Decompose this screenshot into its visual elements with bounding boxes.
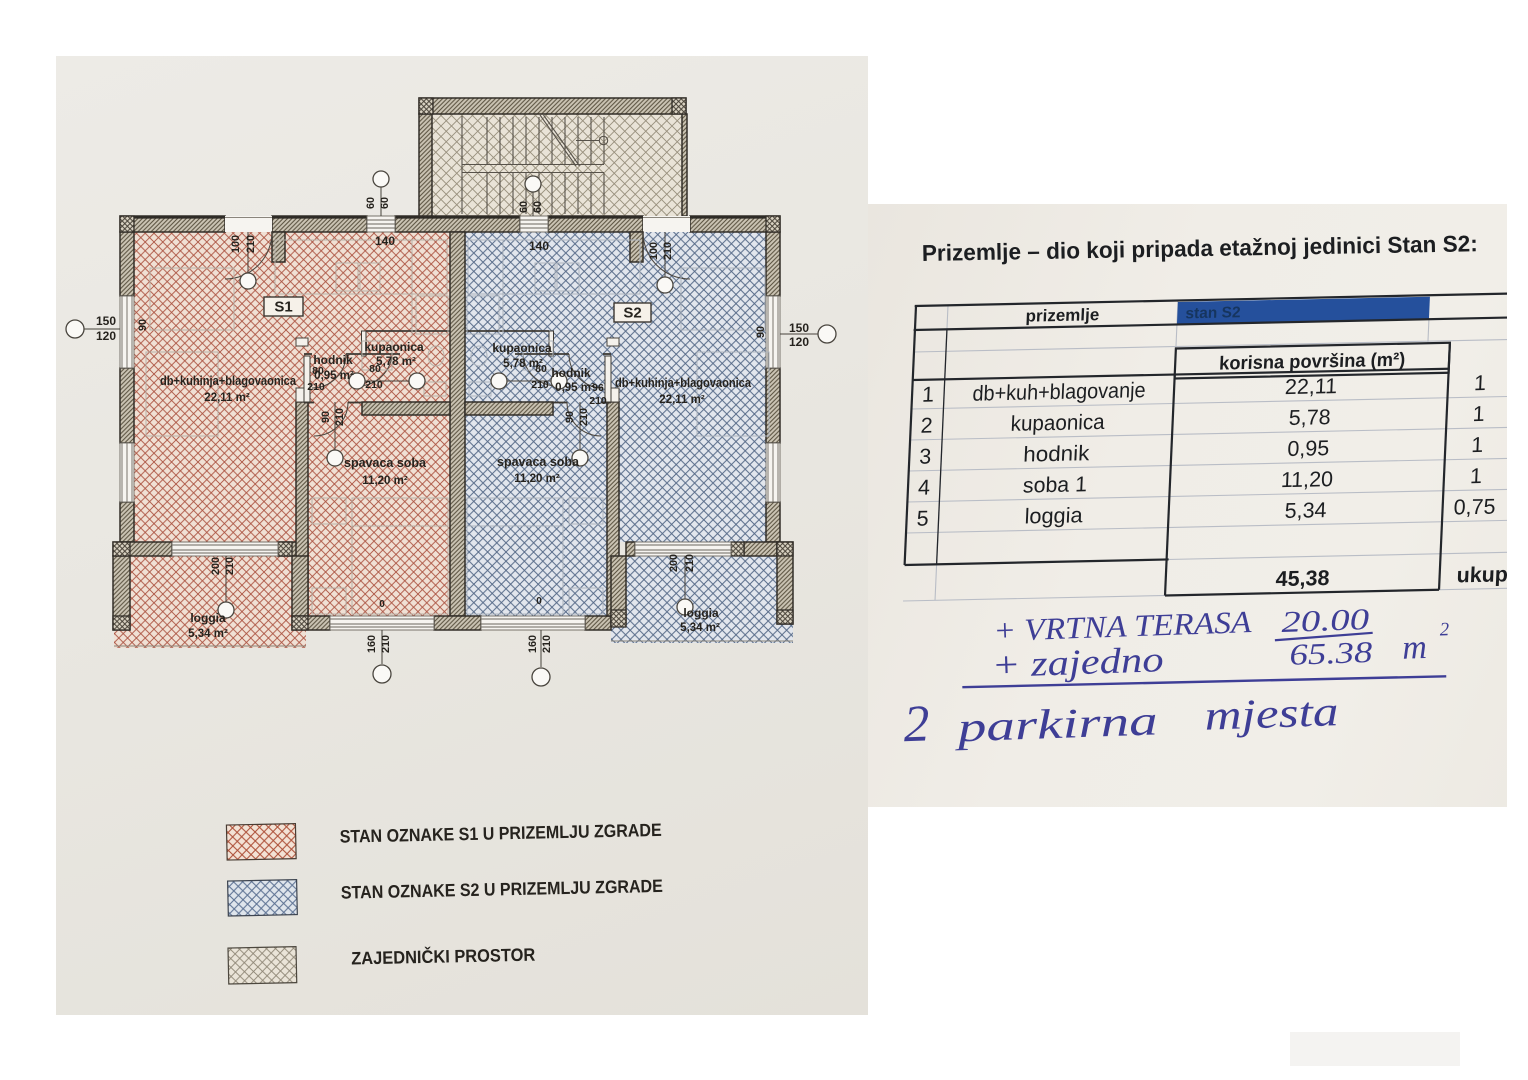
svg-text:STAN OZNAKE S1 U PRIZEMLJU ZGR: STAN OZNAKE S1 U PRIZEMLJU ZGRADE [339,820,661,847]
svg-text:45,38: 45,38 [1275,566,1330,591]
svg-text:0,95 m²: 0,95 m² [555,382,595,394]
svg-text:60: 60 [365,197,377,209]
svg-text:2: 2 [903,695,931,753]
svg-text:korisna površina (m²): korisna površina (m²) [1219,350,1406,375]
svg-text:3: 3 [919,445,932,469]
svg-text:210: 210 [589,395,607,407]
svg-text:210: 210 [245,235,257,253]
svg-text:0,95: 0,95 [1287,436,1330,461]
svg-text:5,34 m²: 5,34 m² [680,622,720,634]
svg-text:S2: S2 [623,305,641,322]
svg-text:160: 160 [366,635,378,653]
svg-text:80: 80 [369,363,381,375]
svg-text:0: 0 [536,596,542,607]
svg-text:11,20: 11,20 [1280,467,1333,492]
svg-text:kupaonica: kupaonica [364,340,424,354]
svg-text:210: 210 [662,242,674,260]
svg-text:5,34 m²: 5,34 m² [188,628,228,640]
svg-text:1: 1 [1472,402,1485,426]
svg-text:210: 210 [541,635,553,653]
svg-text:S1: S1 [274,299,292,316]
svg-text:210: 210 [307,381,325,393]
svg-text:22,11: 22,11 [1284,374,1337,399]
svg-text:210: 210 [531,379,549,391]
svg-text:60: 60 [518,201,530,213]
svg-text:m: m [1402,629,1428,667]
svg-text:22,11 m²: 22,11 m² [204,392,250,404]
svg-text:120: 120 [789,335,809,349]
svg-text:hodnik: hodnik [1023,441,1090,466]
svg-text:1: 1 [1474,371,1487,395]
svg-text:kupaonica: kupaonica [492,341,552,355]
svg-text:hodnik: hodnik [551,366,591,380]
svg-text:210: 210 [684,554,696,572]
svg-text:2: 2 [1439,619,1450,640]
svg-text:kupaonica: kupaonica [1010,410,1105,436]
svg-text:loggia: loggia [190,611,226,625]
svg-text:2: 2 [920,414,933,438]
svg-text:0: 0 [379,599,385,610]
svg-text:210: 210 [365,379,383,391]
svg-text:0,75: 0,75 [1453,495,1496,520]
svg-text:ukupno: ukupno [1456,562,1507,588]
svg-text:22,11 m²: 22,11 m² [659,394,705,406]
svg-text:60: 60 [379,197,391,209]
svg-text:stan S2: stan S2 [1185,304,1241,322]
svg-text:+ zajedno: + zajedno [991,639,1164,685]
svg-text:ZAJEDNIČKI PROSTOR: ZAJEDNIČKI PROSTOR [351,944,535,969]
svg-text:parkirna: parkirna [953,698,1159,751]
svg-text:210: 210 [334,408,346,426]
svg-text:96: 96 [592,382,604,394]
svg-text:spavaca soba: spavaca soba [497,455,580,469]
svg-text:1: 1 [1471,433,1484,457]
svg-text:210: 210 [578,408,590,426]
svg-text:150: 150 [789,321,809,335]
svg-text:1: 1 [1469,464,1482,488]
svg-text:150: 150 [96,314,116,328]
svg-text:90: 90 [137,319,149,331]
svg-text:11,20 m²: 11,20 m² [514,473,560,485]
svg-text:loggia: loggia [1024,503,1083,528]
svg-text:100: 100 [648,242,660,260]
svg-text:90: 90 [564,411,576,423]
svg-text:5,78 m²: 5,78 m² [376,356,416,368]
svg-text:db+kuh+blagovanje: db+kuh+blagovanje [972,378,1146,406]
svg-text:1: 1 [922,383,935,407]
svg-text:11,20 m²: 11,20 m² [362,475,408,487]
svg-text:200: 200 [210,557,222,575]
svg-text:prizemlje: prizemlje [1025,305,1099,326]
svg-text:STAN OZNAKE S2 U PRIZEMLJU ZGR: STAN OZNAKE S2 U PRIZEMLJU ZGRADE [341,876,663,903]
svg-text:210: 210 [224,557,236,575]
svg-text:210: 210 [380,635,392,653]
svg-text:80: 80 [312,365,324,377]
svg-text:140: 140 [529,239,549,253]
svg-text:db+kuhinja+blagovaonica: db+kuhinja+blagovaonica [615,376,752,390]
svg-text:60: 60 [532,201,544,213]
svg-text:spavaca soba: spavaca soba [344,456,427,470]
svg-text:soba 1: soba 1 [1022,472,1087,497]
svg-text:loggia: loggia [683,606,719,620]
svg-text:5: 5 [916,507,929,531]
svg-text:200: 200 [668,554,680,572]
svg-text:65.38: 65.38 [1289,636,1373,672]
svg-text:90: 90 [755,326,767,338]
svg-text:80: 80 [535,363,547,375]
svg-text:Prizemlje – dio koji pripada e: Prizemlje – dio koji pripada etažnoj jed… [922,230,1478,266]
svg-text:4: 4 [917,476,930,500]
svg-text:5,78: 5,78 [1288,405,1331,430]
svg-text:90: 90 [320,411,332,423]
svg-text:140: 140 [375,234,395,248]
svg-text:160: 160 [527,635,539,653]
svg-text:120: 120 [96,329,116,343]
svg-text:100: 100 [230,235,242,253]
svg-text:5,34: 5,34 [1284,498,1327,523]
svg-text:mjesta: mjesta [1204,689,1340,740]
svg-text:db+kuhinja+blagovaonica: db+kuhinja+blagovaonica [160,374,297,388]
